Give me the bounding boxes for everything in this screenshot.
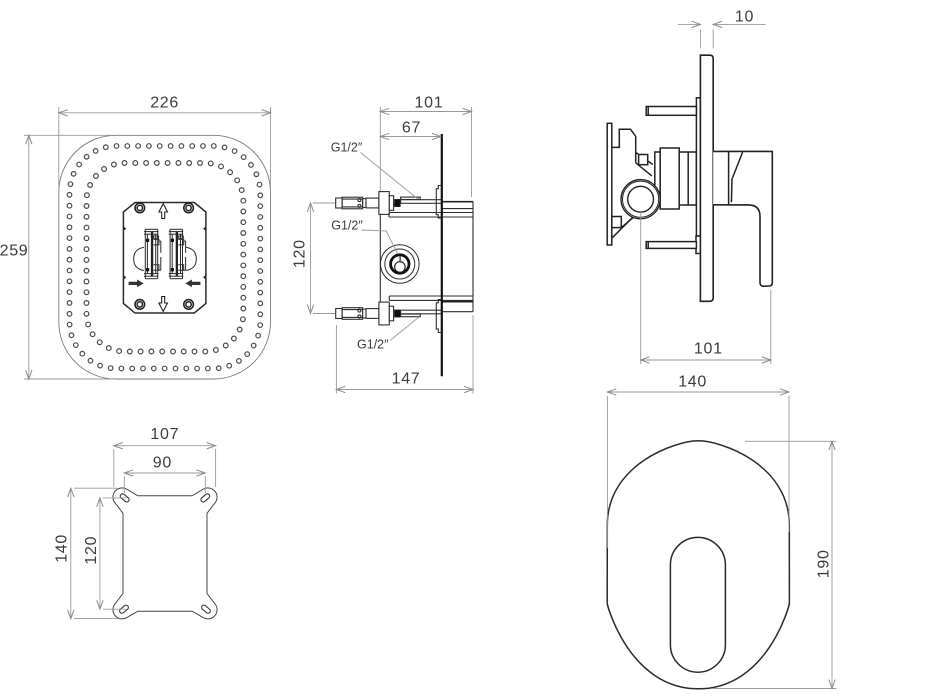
svg-text:101: 101 [694,341,723,358]
svg-text:10: 10 [735,8,754,25]
svg-text:120: 120 [83,536,100,565]
svg-text:190: 190 [816,549,833,578]
svg-text:107: 107 [150,426,179,443]
svg-text:101: 101 [415,95,444,112]
svg-text:140: 140 [678,374,707,391]
svg-text:G1/2″: G1/2″ [331,219,363,233]
svg-text:G1/2″: G1/2″ [331,141,363,155]
svg-text:90: 90 [153,455,172,472]
svg-text:226: 226 [150,95,179,112]
svg-text:120: 120 [292,239,309,268]
svg-text:140: 140 [54,534,71,563]
svg-text:259: 259 [0,243,28,260]
svg-text:147: 147 [392,371,421,388]
svg-text:G1/2″: G1/2″ [357,338,389,352]
svg-text:67: 67 [402,119,421,136]
